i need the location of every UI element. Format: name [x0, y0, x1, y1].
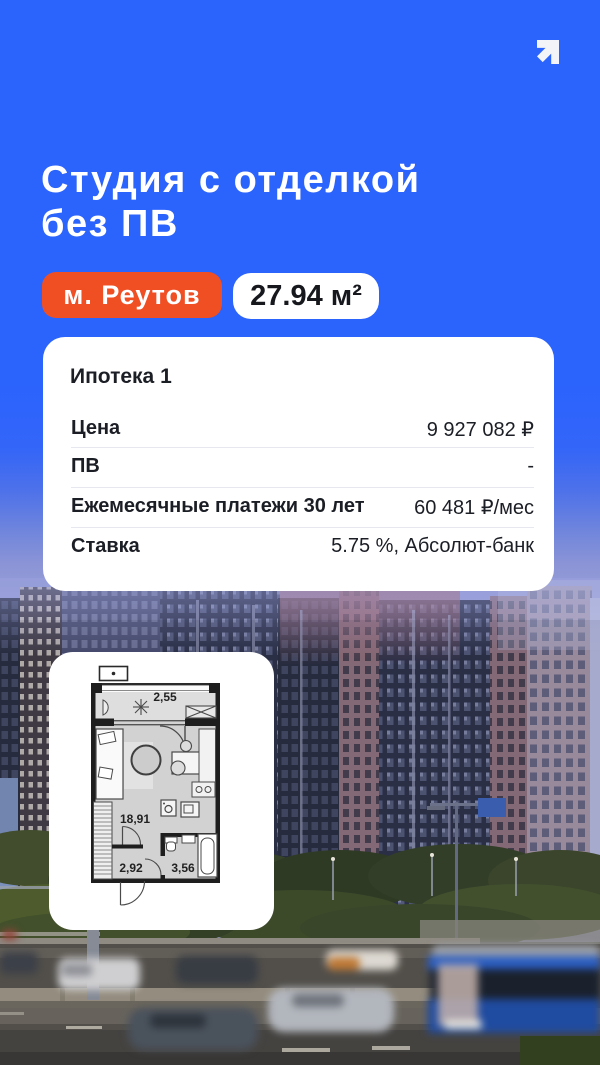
svg-text:2,92: 2,92: [119, 861, 143, 875]
svg-text:3,56: 3,56: [171, 861, 195, 875]
svg-text:2,55: 2,55: [153, 690, 177, 704]
svg-text:18,91: 18,91: [120, 812, 150, 826]
